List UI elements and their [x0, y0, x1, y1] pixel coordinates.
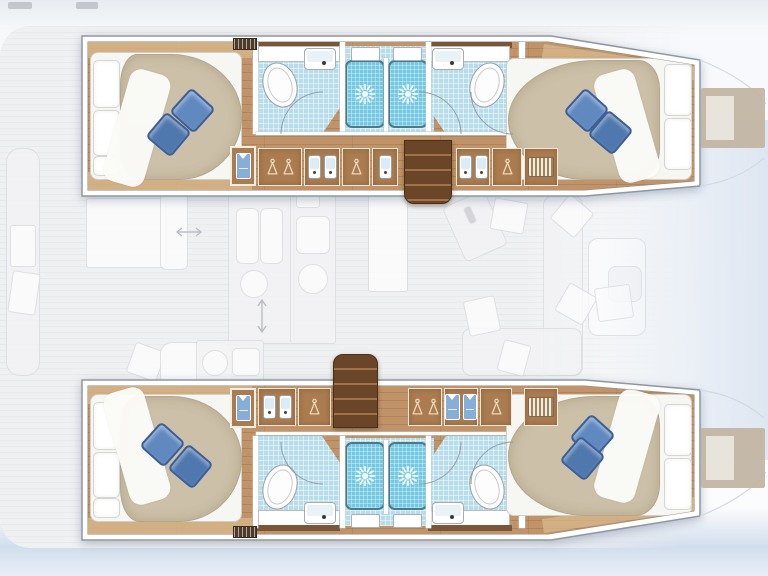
catamaran-floor-plan [0, 0, 768, 576]
door-swing-arc-icon [281, 92, 513, 484]
door-arcs-overlay [0, 0, 768, 576]
double-arrow-icon [177, 228, 266, 332]
